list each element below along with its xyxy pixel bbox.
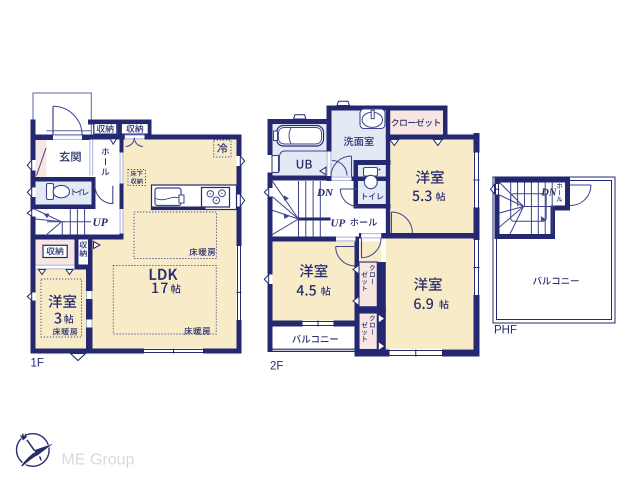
- svg-text:UP: UP: [331, 217, 346, 229]
- svg-text:2F: 2F: [270, 361, 283, 373]
- svg-text:PHF: PHF: [494, 325, 517, 337]
- svg-text:DN: DN: [540, 188, 557, 199]
- svg-text:UP: UP: [93, 217, 109, 229]
- svg-text:1F: 1F: [31, 358, 44, 370]
- svg-text:DN: DN: [316, 187, 334, 199]
- svg-text:ME Group: ME Group: [62, 451, 135, 468]
